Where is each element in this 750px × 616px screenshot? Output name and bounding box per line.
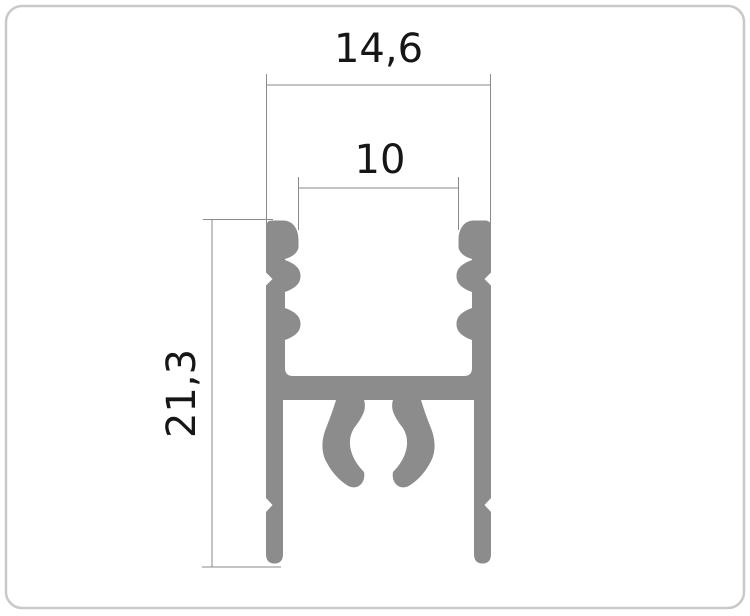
- aluminum-profile-shape: [266, 221, 491, 564]
- dimension-height: 21,3: [159, 220, 281, 568]
- opening-width-label: 10: [355, 137, 406, 183]
- profile-left-half: [266, 221, 379, 564]
- profile-right-half: [379, 221, 492, 564]
- dimension-opening-width: 10: [299, 137, 459, 230]
- drawing-stage: 14,6 10 21,3: [0, 0, 750, 616]
- height-label: 21,3: [159, 349, 205, 438]
- profile-drawing-canvas: 14,6 10 21,3: [0, 0, 750, 616]
- outer-width-label: 14,6: [334, 26, 423, 72]
- image-frame-border: [6, 6, 744, 608]
- dimension-outer-width: 14,6: [267, 26, 491, 226]
